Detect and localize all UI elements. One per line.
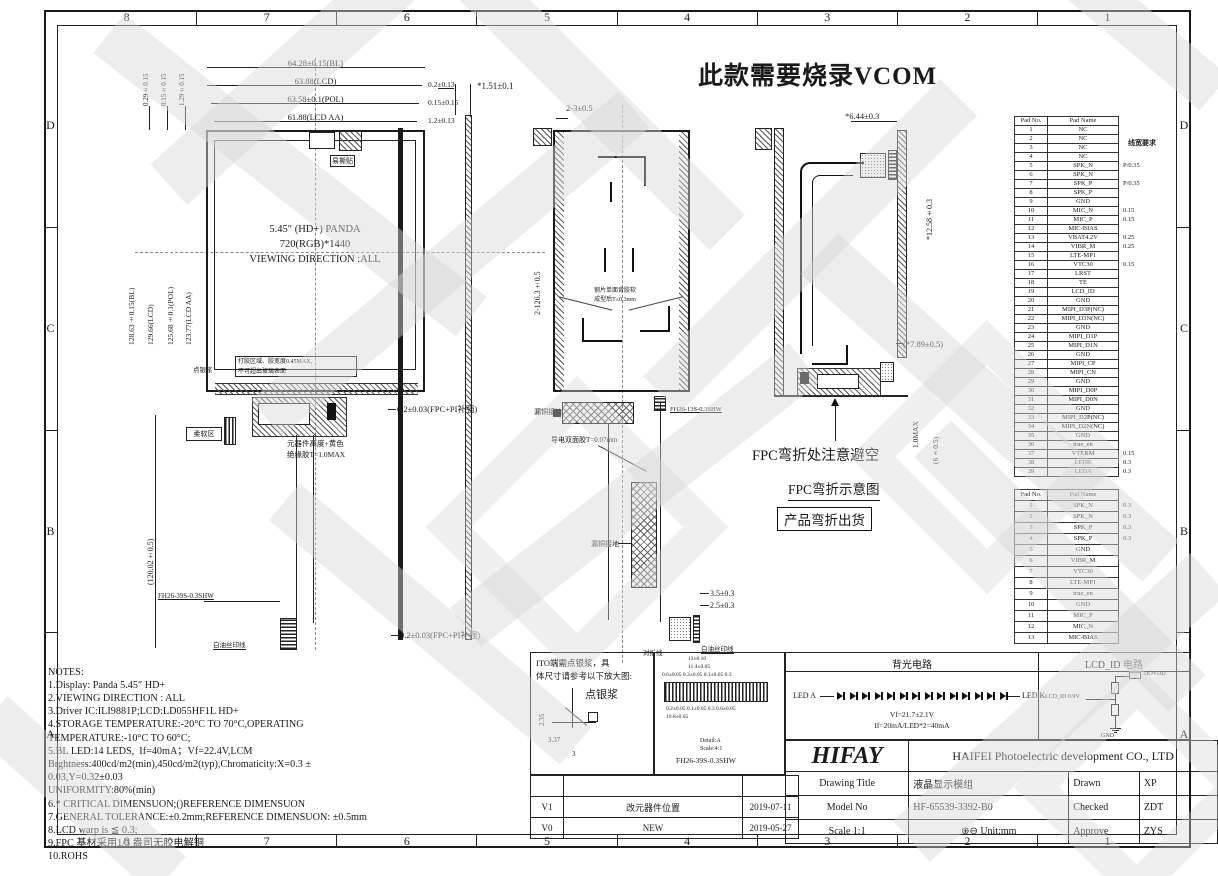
component-small [327, 403, 336, 420]
dim-tick [149, 106, 150, 130]
back-top-dim: 2-3±0.5 [566, 103, 593, 113]
pin-annotation [1119, 198, 1164, 207]
pin-no: 35 [1015, 432, 1048, 441]
pin-no: 33 [1015, 414, 1048, 423]
zone-letter: B [1177, 431, 1191, 634]
pin-annotation [1119, 423, 1164, 432]
soft-zone-label: 柔软区 [186, 427, 222, 441]
pin-name: SPK_P [1048, 189, 1119, 198]
pin-name: GND [1048, 198, 1119, 207]
pin-name: MIC-BIAS [1048, 633, 1119, 644]
back-right-frame [679, 132, 688, 390]
checked-label: Checked [1069, 796, 1140, 820]
dim-tick [470, 84, 471, 115]
pin-row: 33 MIPI_D2P(NC) [1015, 414, 1164, 423]
pin-name: VTERM [1048, 450, 1119, 459]
glue-note: 打胶区域、胶宽度0.45MAX, 不可超出玻璃表面 [235, 356, 357, 377]
back-view-outline [553, 130, 690, 392]
pin-name: SPK_P [1048, 523, 1119, 534]
fpc-outline [608, 424, 609, 620]
pin-annotation [1119, 369, 1164, 378]
led-diode-icon [911, 691, 921, 701]
led-diode-icon [949, 691, 959, 701]
notes-line: 4.STORAGE TEMPERATURE:-20°C TO 70°C,OPER… [48, 718, 530, 731]
pin-name: GND [1048, 351, 1119, 360]
detail-connector-comb [664, 682, 768, 702]
zone-number: 3 [758, 10, 898, 25]
ground-bar [1110, 728, 1121, 729]
zone-letter: C [1177, 228, 1191, 431]
pin-row: 39 LEDA 0.3 [1015, 468, 1164, 477]
dim-tick [185, 106, 186, 130]
pin-no: 10 [1015, 207, 1048, 216]
detail-dim-top3: 0.6±0.05 0.3±0.05 0.1±0.05 0.3 [662, 672, 732, 678]
backlight-header-divider [786, 671, 1038, 672]
pin-no: 36 [1015, 441, 1048, 450]
zone-letter: B [44, 431, 57, 634]
approve-label: Approve [1069, 820, 1140, 844]
dim-tick [700, 593, 709, 594]
zone-number: 5 [477, 10, 617, 25]
drawn-value: XP [1139, 772, 1217, 796]
zone-letter: D [44, 25, 57, 228]
revision-version: V1 [531, 797, 564, 818]
side-view-fpc-strip [398, 128, 403, 640]
pin-no: 24 [1015, 333, 1048, 342]
fpc-pi-note-1: 0.2±0.03(FPC+PI补强) [397, 403, 477, 415]
zone-number: 8 [57, 10, 197, 25]
dim-tick [455, 84, 456, 115]
pin-no: 21 [1015, 306, 1048, 315]
notes-line: 1.Display: Panda 5.45″ HD+ [48, 679, 530, 692]
led-diode-icon [886, 691, 896, 701]
pin-name: SPK_N [1048, 162, 1119, 171]
revision-spacer-row [531, 776, 799, 797]
led-diode-icon [986, 691, 996, 701]
lcd-id-signal-label: LCD_ID 0.9V [1045, 694, 1080, 700]
revision-description: NEW [564, 818, 743, 839]
pin-name: GND [1048, 600, 1119, 611]
fold-bottom-ic [817, 374, 859, 389]
pin-no: 20 [1015, 297, 1048, 306]
pin-name: LEDA [1048, 468, 1119, 477]
dim-tick [167, 106, 168, 130]
panel-viewing-line: VIEWING DIRECTION :ALL [216, 252, 414, 267]
side-view-lcm-strip [465, 115, 472, 640]
dim-left-small-2: 0.15±0.15 [160, 58, 168, 106]
pointer-arrow-line [835, 405, 836, 441]
fold-right-wall [897, 130, 907, 358]
ito-dim-2-35: 2.35 [538, 692, 546, 726]
pin-no: 12 [1015, 225, 1048, 234]
dim-2-5: 2.5±0.3 [710, 601, 734, 610]
pin-row: 6 VIBR_M [1015, 556, 1164, 567]
pin-annotation [1119, 633, 1164, 644]
pin-no: 25 [1015, 342, 1048, 351]
led-diode-icon [874, 691, 884, 701]
pin-name: true_en [1048, 441, 1119, 450]
pin-annotation [1119, 414, 1164, 423]
pin-name: NC [1048, 135, 1119, 144]
pin-name: MIPI_D2P(NC) [1048, 414, 1119, 423]
pin-no: 39 [1015, 468, 1048, 477]
pin-name: MIPI_D1P [1048, 333, 1119, 342]
pin-annotation [1119, 342, 1164, 351]
zone-letter: C [44, 228, 57, 431]
folded-fpc-path-inner [812, 175, 853, 346]
zone-numbers-top: 87654321 [57, 10, 1177, 25]
dim-7-89: (*7.89±0.5) [903, 339, 943, 349]
pin-name: MIPI_D1N [1048, 342, 1119, 351]
pin-name: NC [1048, 144, 1119, 153]
pin-name: MIPI_D3N(NC) [1048, 315, 1119, 324]
detail-dim-bot1: 0.2±0.05 0.1±0.05 0.3 0.6±0.05 [666, 706, 736, 712]
pin-row: 24 MIPI_D1P [1015, 333, 1164, 342]
checked-value: ZDT [1139, 796, 1217, 820]
detail-caption-a: Detail:A [700, 738, 721, 744]
pin-annotation [1119, 315, 1164, 324]
pin-row: 31 MIPI_D0N [1015, 396, 1164, 405]
pin-no: 9 [1015, 198, 1048, 207]
fpc-outline [660, 402, 661, 622]
tape-mark [582, 340, 622, 342]
dim-3-5: 3.5±0.3 [710, 589, 734, 598]
pin-no: 38 [1015, 459, 1048, 468]
tape-mark [640, 330, 670, 332]
ito-silver-dot [588, 712, 598, 722]
pin-name: VTC30 [1048, 261, 1119, 270]
pin-no: 7 [1015, 567, 1048, 578]
pin-row: 15 LTE-MP1 [1015, 252, 1164, 261]
conductive-tape-label: 导电双面胶T=0.07mm [551, 435, 617, 445]
panel-resolution-line: 720(RGB)*1440 [216, 237, 414, 252]
ito-note-line2: 体尺寸请参考以下放大图: [536, 670, 632, 682]
pin-row: 29 GND [1015, 378, 1164, 387]
pin-name: NC [1048, 153, 1119, 162]
glue-note-line2: 不可超出玻璃表面 [238, 367, 354, 377]
pin-annotation [1119, 611, 1164, 622]
pin-name: MIPI_D2N(NC) [1048, 423, 1119, 432]
drawing-title-label: Drawing Title [786, 772, 909, 796]
pin-row: 10 GND [1015, 600, 1164, 611]
pin-name: SPK_N [1048, 512, 1119, 523]
pin-annotation [1119, 396, 1164, 405]
pin-annotation: 0.15 [1119, 261, 1164, 270]
led-diode-icon [836, 691, 846, 701]
pin-name: MIC_P [1048, 216, 1119, 225]
glue-bar [215, 383, 418, 395]
pin-row: 37 VTERM 0.15 [1015, 450, 1164, 459]
model-no-value: HF-65539-3392-B0 [909, 796, 1069, 820]
pin-annotation: 0.15 [1119, 216, 1164, 225]
fpc-fold-diagram-caption: FPC弯折示意图 [788, 478, 880, 501]
zone-number: 6 [337, 10, 477, 25]
resistor-icon [1111, 682, 1119, 694]
pin-row: 18 TE [1015, 279, 1164, 288]
pin-row: 11 MIC_P [1015, 611, 1164, 622]
pin-no: 4 [1015, 534, 1048, 545]
pin-no: 11 [1015, 216, 1048, 225]
dim-line [207, 67, 425, 68]
pin-row: 38 LEDK 0.3 [1015, 459, 1164, 468]
pin-name: VIBR_M [1048, 556, 1119, 567]
pin-annotation [1119, 360, 1164, 369]
lcd-id-vdd-label: DOVDD [1144, 671, 1166, 677]
pin-annotation [1119, 589, 1164, 600]
title-block-row-3: Scale 1:1 ⊕⊖ Unit:mm Approve ZYS [786, 820, 1218, 844]
pin-name: GND [1048, 324, 1119, 333]
pin-row: 34 MIPI_D2N(NC) [1015, 423, 1164, 432]
pin-row: 7 SPK_P P/0.35 [1015, 180, 1164, 189]
panel-description: 5.45″ (HD+) PANDA 720(RGB)*1440 VIEWING … [216, 222, 414, 267]
ground-bar [1114, 732, 1117, 733]
pin-table-header: Pad No. Pad Name [1015, 490, 1164, 501]
dim-offset-3: 1.2±0.13 [428, 116, 455, 125]
dim-line [438, 88, 454, 89]
pin-name: MIPI_CN [1048, 369, 1119, 378]
lcd-id-circuit-title: LCD_ID 电路 [1038, 656, 1190, 671]
led-anode-label: LED A [793, 691, 816, 700]
dim-line [851, 121, 897, 122]
back-left-frame [555, 132, 564, 390]
detail-caption-scale: Scale:4:1 [700, 746, 722, 752]
back-left-dim: 2-126.3±0.5 [533, 215, 542, 315]
pin-row: 5 SPK_N P/0.35 [1015, 162, 1164, 171]
pin-table-13: Pad No. Pad Name 1 SPK_N 0.3 2 SPK_N 0.3 [1014, 489, 1164, 644]
pin-name: VBAT4.2V [1048, 234, 1119, 243]
pin-no: 4 [1015, 153, 1048, 162]
trace-width-note: 线宽要求 [1128, 138, 1156, 148]
pin-annotation [1119, 279, 1164, 288]
back-bottom-connector-pins [693, 615, 700, 643]
dim-left-small-3: 1.29±0.15 [178, 58, 186, 106]
fold-top-connector-pins [888, 150, 897, 180]
dim-left-small-1: 0.29±0.15 [142, 58, 150, 106]
ground-pad [553, 409, 561, 417]
pin-name: MIPI_D0P [1048, 387, 1119, 396]
pin-no: 29 [1015, 378, 1048, 387]
pin-annotation [1119, 252, 1164, 261]
notes-line: Brghtness:400cd/m2(min),450cd/m2(typ),Ch… [48, 758, 530, 771]
back-bottom-connector [669, 617, 691, 641]
circuit-wire [1008, 696, 1020, 697]
zone-letter: D [1177, 25, 1191, 228]
pin-no: 34 [1015, 423, 1048, 432]
ito-drawing-line [552, 722, 596, 723]
pin-table-39-body: 1 NC 2 NC 3 NC 4 NC [1015, 126, 1164, 477]
tape-mark [668, 306, 670, 332]
pin-annotation: 0.3 [1119, 459, 1164, 468]
steel-note-line2: 成型后T≤0.3mm [594, 296, 636, 305]
pin-name: SPK_P [1048, 534, 1119, 545]
front-top-label-box [309, 132, 335, 149]
pin-annotation [1119, 324, 1164, 333]
connector-13-label: FH26-13S-0.3SHW [670, 406, 722, 413]
easy-tear-label: 易撕贴 [330, 155, 355, 167]
drawn-label: Drawn [1069, 772, 1140, 796]
pin-no: 28 [1015, 369, 1048, 378]
pin-row: 28 MIPI_CN [1015, 369, 1164, 378]
tape-mark [582, 318, 584, 342]
notes-block: NOTES:1.Display: Panda 5.45″ HD+2.VIEWIN… [48, 626, 530, 864]
pin-no: 19 [1015, 288, 1048, 297]
pin-name: GND [1048, 432, 1119, 441]
fold-mid-connector [880, 362, 894, 382]
pin-annotation: 0.15 [1119, 207, 1164, 216]
model-no-label: Model No [786, 796, 909, 820]
dim-line [207, 85, 422, 86]
pin-no: 15 [1015, 252, 1048, 261]
pin-annotation: 0.15 [1119, 450, 1164, 459]
pin-annotation [1119, 567, 1164, 578]
ground-copper-strip [631, 482, 657, 588]
notes-line: 2.VIEWING DIRECTION : ALL [48, 692, 530, 705]
led-string [836, 691, 1009, 701]
backlight-vf: Vf=21.7±2.1V [785, 710, 1039, 719]
pin-annotation [1119, 405, 1164, 414]
ground-copper-bar [562, 402, 634, 424]
notes-line: TEMPERATURE:-10°C TO 60°C; [48, 732, 530, 745]
notes-line: 8.LCD warp is ≦ 0.3; [48, 824, 530, 837]
revision-description: 改元器件位置 [564, 797, 743, 818]
revision-row: V1 改元器件位置 2019-07-11 [531, 797, 799, 818]
pin-row: 23 GND [1015, 324, 1164, 333]
pin-no: 2 [1015, 135, 1048, 144]
pin-name: true_en [1048, 589, 1119, 600]
pin-no: 9 [1015, 589, 1048, 600]
company-logo: HIFAY [812, 743, 883, 769]
pin-name: MIPI_CP [1048, 360, 1119, 369]
pin-name: SPK_N [1048, 171, 1119, 180]
notes-line: 10.ROHS [48, 850, 530, 863]
revision-table: V1 改元器件位置 2019-07-11 V0 NEW 2019-05-27 [530, 775, 799, 839]
pin-no: 10 [1015, 600, 1048, 611]
notes-line: 5.BL LED:14 LEDS, If=40mA；Vf=22.4V,LCM [48, 745, 530, 758]
pin-annotation: 0.3 [1119, 468, 1164, 477]
circuit-wire [1086, 699, 1115, 700]
pin-row: 17 LRST [1015, 270, 1164, 279]
pin-row: 8 SPK_P [1015, 189, 1164, 198]
pin-row: 13 MIC-BIAS [1015, 633, 1164, 644]
dim-offset-2: 0.15±0.15 [428, 98, 458, 107]
fpc-tail [296, 435, 314, 623]
fpc-connector-13 [654, 396, 666, 411]
pin-no: 26 [1015, 351, 1048, 360]
pin-row: 25 MIPI_D1N [1015, 342, 1164, 351]
dim-line [211, 103, 419, 104]
pin-annotation [1119, 578, 1164, 589]
copper-ground-label-2: 漏铜接地 [591, 539, 619, 549]
pin-no: 7 [1015, 180, 1048, 189]
pin-row: 36 true_en [1015, 441, 1164, 450]
pin-row: 19 LCD_ID [1015, 288, 1164, 297]
leader-line [618, 543, 631, 544]
company-name: HAIFEI Photoelectric development CO., LT… [909, 741, 1218, 772]
steel-note-line1: 钢片单面背胶软 [594, 287, 636, 296]
zone-number: 4 [618, 10, 758, 25]
resistor-icon [1111, 704, 1119, 716]
dim-bl-height: 128.63±0.15(BL) [127, 215, 136, 345]
pin-name-header: Pad Name [1048, 117, 1119, 126]
dim-tick [700, 605, 709, 606]
fold-top-tab [755, 128, 772, 150]
revision-cell-empty [531, 776, 564, 797]
notes-line: 6.* CRITICAL DIMENSUON;()REFERENCE DIMEN… [48, 798, 530, 811]
pin-row: 4 NC [1015, 153, 1164, 162]
pin-no: 3 [1015, 523, 1048, 534]
pin-no: 3 [1015, 144, 1048, 153]
pin-name: LEDK [1048, 459, 1119, 468]
pin-name: LRST [1048, 270, 1119, 279]
pin-no: 8 [1015, 578, 1048, 589]
company-logo-cell: HIFAY [786, 741, 909, 772]
pin-name: MIC-BIAS [1048, 225, 1119, 234]
pin-annotation [1119, 288, 1164, 297]
revision-cell-empty [564, 776, 743, 797]
detail-dim-bot2: 10.8±0.05 [666, 714, 688, 720]
pin-name: VIBR_M [1048, 243, 1119, 252]
pin-annotation [1119, 351, 1164, 360]
dim-12-58: *12.58±0.3 [925, 160, 934, 240]
pin-name: LTE-MP1 [1048, 578, 1119, 589]
notes-line: UNIFORMITY:80%(min) [48, 784, 530, 797]
pin-name: GND [1048, 378, 1119, 387]
pin-annotation [1119, 333, 1164, 342]
title-block-row-1: Drawing Title 液晶显示模组 Drawn XP [786, 772, 1218, 796]
leader-line [388, 409, 396, 410]
led-diode-icon [849, 691, 859, 701]
pullup-terminal [1129, 672, 1141, 679]
pin-annotation [1119, 432, 1164, 441]
pin-row: 21 MIPI_D3P(NC) [1015, 306, 1164, 315]
pin-name: LCD_ID [1048, 288, 1119, 297]
tape-mark [632, 248, 634, 272]
pin-no: 17 [1015, 270, 1048, 279]
pin-name: GND [1048, 405, 1119, 414]
detail-dim-top1: 12±0.10 [688, 656, 706, 662]
leader-line [896, 343, 903, 344]
pin-row: 16 VTC30 0.15 [1015, 261, 1164, 270]
ground-bar [1112, 730, 1119, 731]
pin-ann-header [1119, 490, 1164, 501]
pin-annotation [1119, 622, 1164, 633]
pin-name: GND [1048, 545, 1119, 556]
notes-line: 3.Driver IC:ILI9881P;LCD:LD055HF1L HD+ [48, 705, 530, 718]
pin-no: 6 [1015, 171, 1048, 180]
pin-no: 14 [1015, 243, 1048, 252]
pin-no: 1 [1015, 501, 1048, 512]
led-diode-icon [961, 691, 971, 701]
title-block: HIFAY HAIFEI Photoelectric development C… [785, 740, 1218, 844]
glue-note-line1: 打胶区域、胶宽度0.45MAX, [238, 357, 354, 367]
led-diode-icon [899, 691, 909, 701]
pin-annotation [1119, 225, 1164, 234]
pin-no-header: Pad No. [1015, 490, 1048, 501]
pin-annotation: 0.3 [1119, 534, 1164, 545]
led-diode-icon [936, 691, 946, 701]
title-block-logo-row: HIFAY HAIFEI Photoelectric development C… [786, 741, 1218, 772]
led-diode-icon [999, 691, 1009, 701]
pin-no: 2 [1015, 512, 1048, 523]
pin-no: 37 [1015, 450, 1048, 459]
dim-line [214, 121, 417, 122]
pin-no: 6 [1015, 556, 1048, 567]
pin-no: 16 [1015, 261, 1048, 270]
pin-name: SPK_N [1048, 501, 1119, 512]
leader-line [204, 601, 280, 602]
revision-version: V0 [531, 818, 564, 839]
fold-small-component [800, 372, 809, 384]
